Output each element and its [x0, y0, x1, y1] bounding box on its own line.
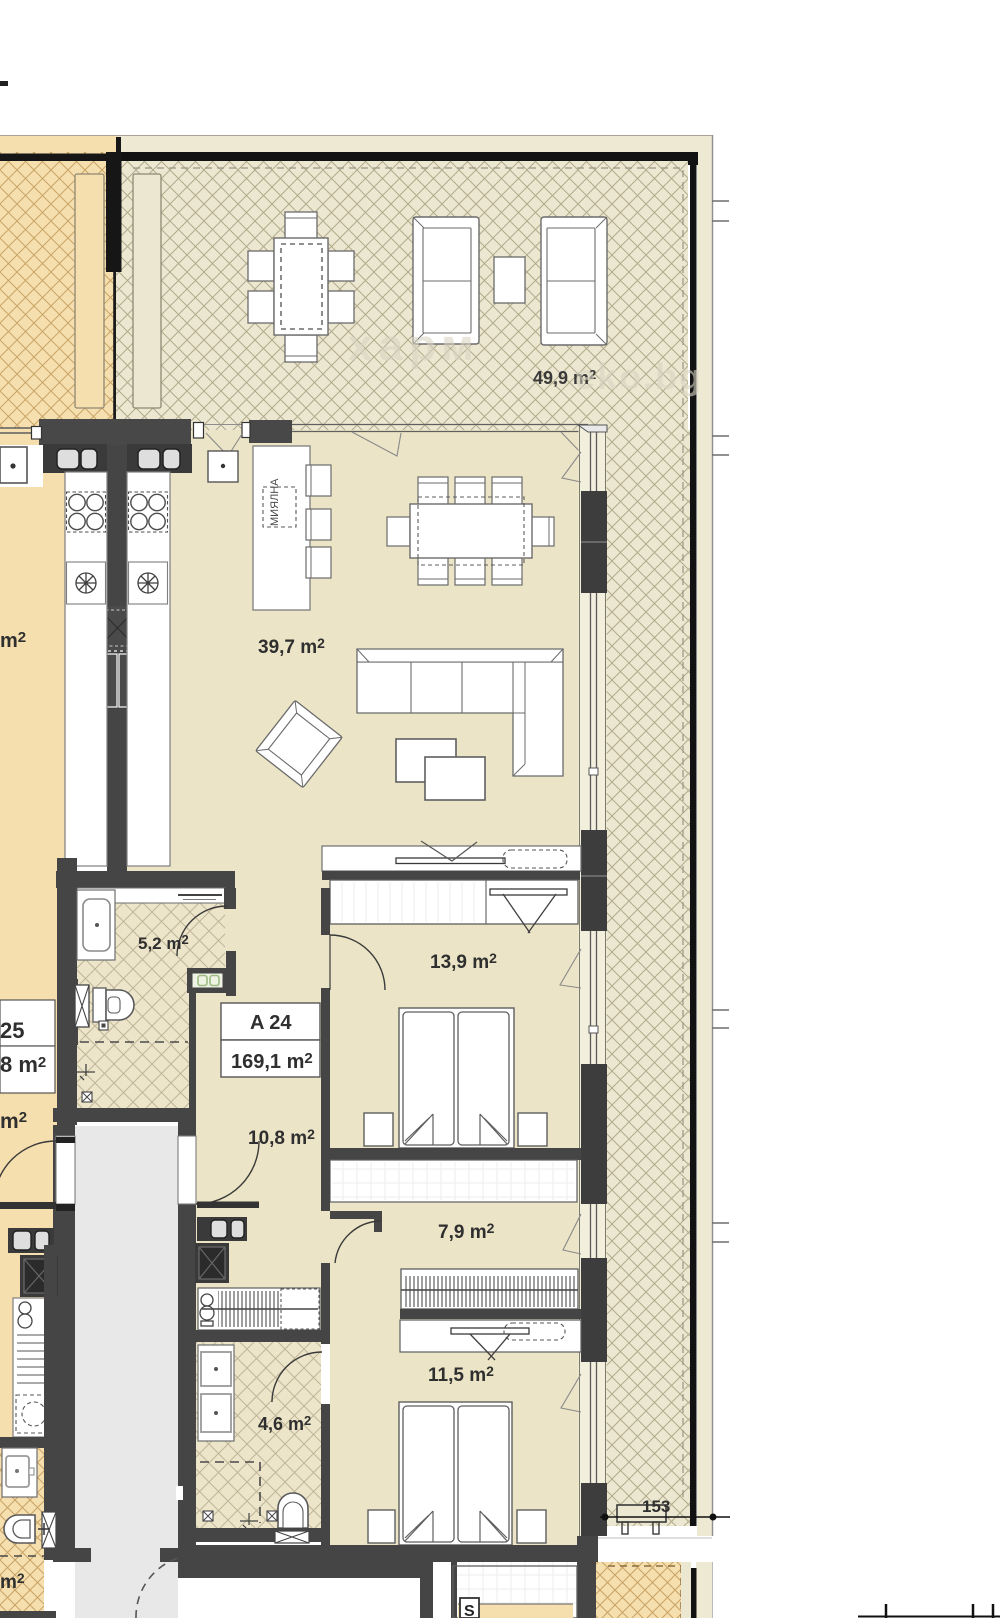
svg-text:A 24: A 24 [250, 1012, 292, 1034]
svg-text:10,8 m2: 10,8 m2 [248, 1126, 315, 1149]
svg-text:13,9 m2: 13,9 m2 [430, 950, 497, 973]
svg-text:5,2 m2: 5,2 m2 [138, 932, 189, 953]
svg-text:153: 153 [642, 1497, 670, 1516]
svg-text:eko.bg: eko.bg [575, 356, 703, 397]
svg-text:25: 25 [0, 1018, 24, 1043]
svg-text:МИЯЛНА: МИЯЛНА [269, 478, 281, 526]
svg-text:S: S [464, 1603, 475, 1618]
svg-text:7,9 m2: 7,9 m2 [438, 1220, 495, 1243]
svg-text:11,5 m2: 11,5 m2 [428, 1363, 494, 1386]
svg-text:169,1 m2: 169,1 m2 [231, 1050, 313, 1073]
svg-text:4,6 m2: 4,6 m2 [258, 1413, 311, 1434]
svg-text:39,7 m2: 39,7 m2 [258, 635, 325, 658]
svg-text:харм: харм [348, 321, 480, 370]
